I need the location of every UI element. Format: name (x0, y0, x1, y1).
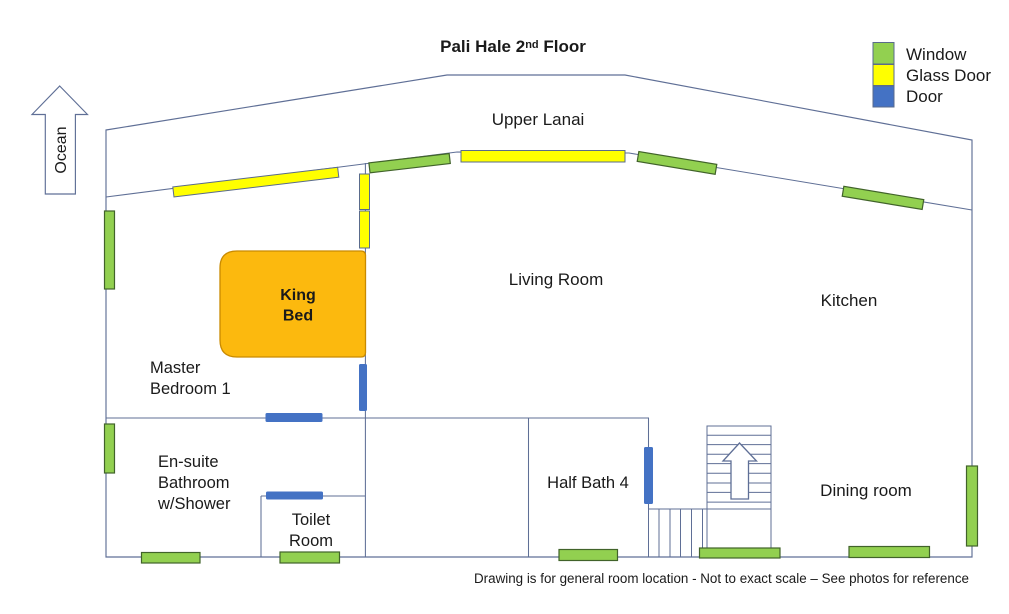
svg-text:Half Bath 4: Half Bath 4 (547, 474, 629, 492)
svg-text:En-suite: En-suite (158, 453, 219, 471)
svg-text:Drawing is for general room lo: Drawing is for general room location - N… (474, 571, 969, 586)
svg-text:Ocean: Ocean (53, 126, 70, 173)
svg-text:Toilet: Toilet (292, 511, 331, 529)
svg-text:Window: Window (906, 45, 967, 64)
svg-text:Door: Door (906, 87, 943, 106)
svg-text:Master: Master (150, 359, 201, 377)
svg-text:King: King (280, 287, 316, 304)
svg-text:Living Room: Living Room (509, 270, 604, 289)
svg-text:Pali Hale 2nd Floor: Pali Hale 2nd Floor (440, 37, 586, 56)
svg-text:Kitchen: Kitchen (821, 291, 878, 310)
svg-text:w/Shower: w/Shower (157, 495, 231, 513)
svg-text:Bathroom: Bathroom (158, 474, 230, 492)
svg-text:Dining room: Dining room (820, 481, 912, 500)
svg-text:Upper Lanai: Upper Lanai (492, 110, 585, 129)
svg-text:Bed: Bed (283, 308, 313, 325)
svg-text:Glass Door: Glass Door (906, 66, 991, 85)
svg-text:Bedroom 1: Bedroom 1 (150, 380, 231, 398)
svg-text:Room: Room (289, 532, 333, 550)
